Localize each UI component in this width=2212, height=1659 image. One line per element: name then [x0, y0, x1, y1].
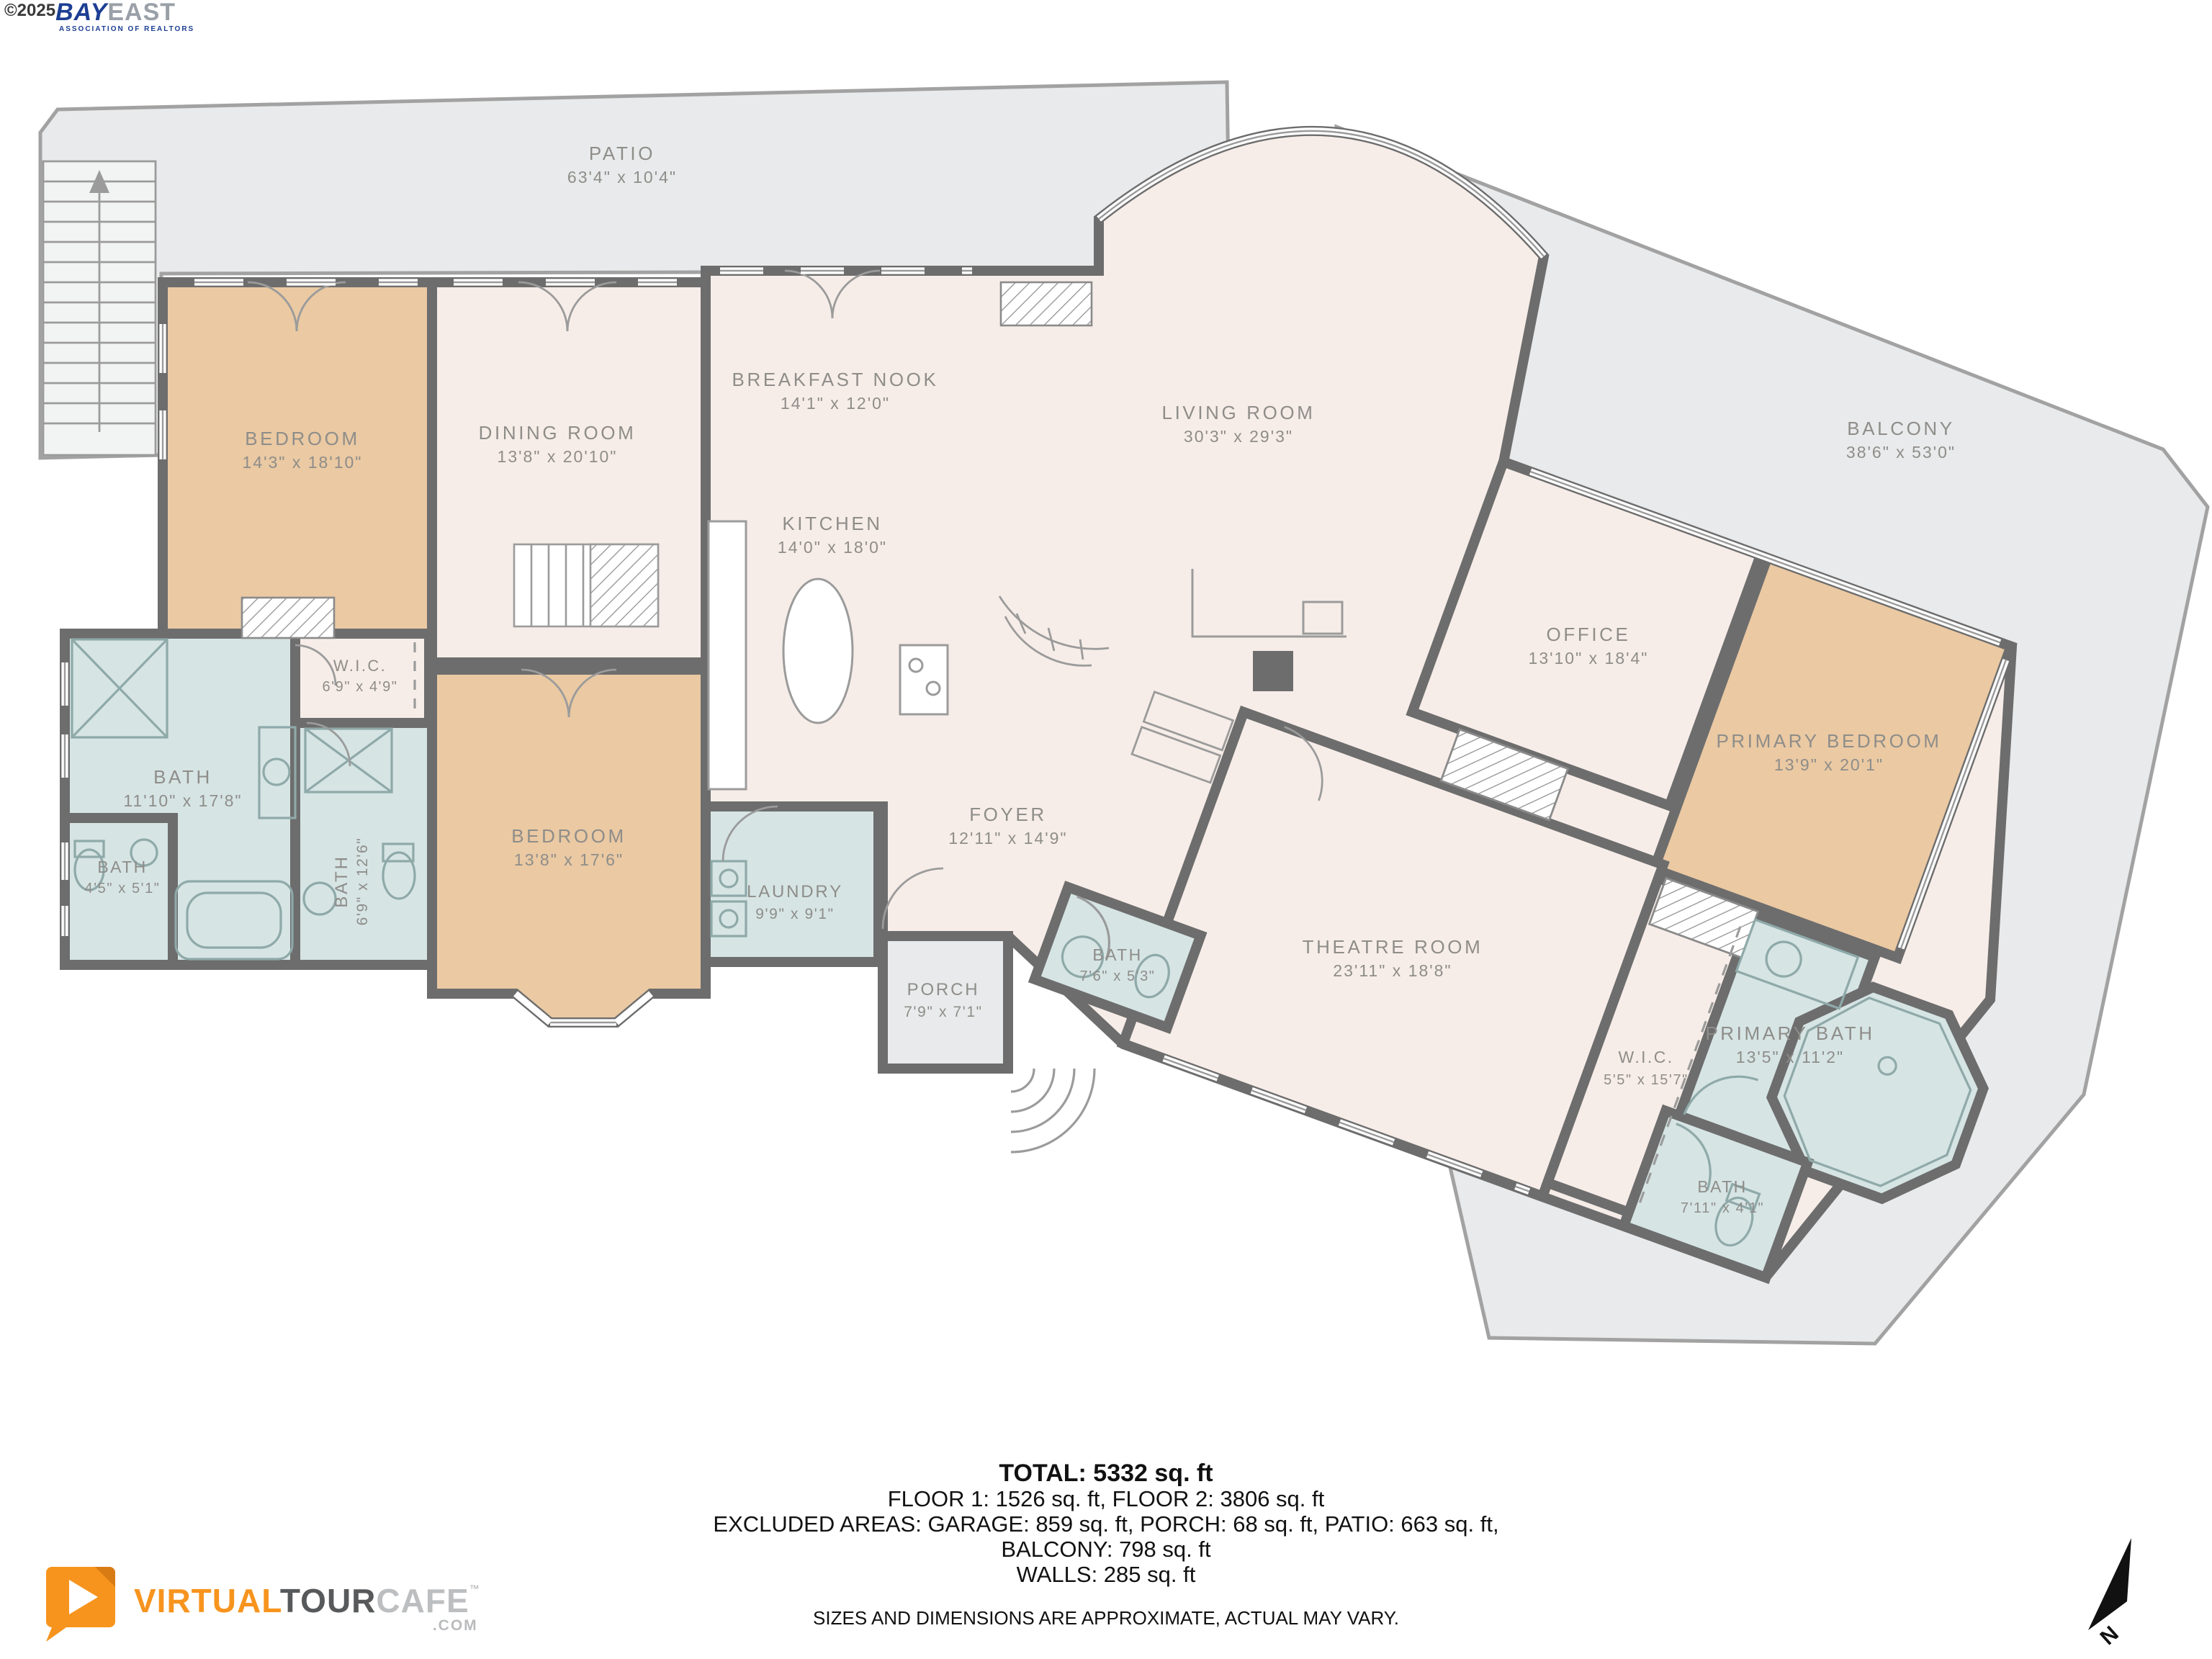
room-label-bath-vertical: BATH — [332, 855, 351, 907]
room-dims-bath-small-left: 4'5" x 5'1" — [84, 881, 160, 896]
room-dims-primary-bath: 13'5" x 11'2" — [1736, 1048, 1844, 1066]
room-label-breakfast: BREAKFAST NOOK — [732, 369, 939, 390]
bayeast-logo: ©2025BAYEAST ASSOCIATION OF REALTORS — [4, 0, 194, 33]
room-label-laundry: LAUNDRY — [747, 882, 843, 902]
room-label-living: LIVING ROOM — [1162, 402, 1316, 423]
bayeast-tagline: ASSOCIATION OF REALTORS — [59, 26, 194, 33]
bayeast-east-text: EAST — [107, 0, 176, 26]
room-dims-bath-main: 11'10" x 17'8" — [123, 791, 242, 810]
room-dims-laundry: 9'9" x 9'1" — [755, 906, 834, 922]
virtualtourcafe-logo: VIRTUALTOURCAFE™ .COM — [43, 1561, 480, 1645]
porch-steps — [1011, 1069, 1094, 1152]
staircase-interior — [514, 544, 658, 626]
total-area: TOTAL: 5332 sq. ft — [0, 1460, 2212, 1486]
room-label-wic-left: W.I.C. — [333, 657, 387, 675]
room-dims-patio: 63'4" x 10'4" — [567, 168, 677, 186]
room-label-wic-primary: W.I.C. — [1618, 1048, 1673, 1066]
wic-left — [295, 634, 429, 723]
room-label-porch: PORCH — [907, 980, 980, 999]
counter — [709, 521, 746, 789]
bayeast-bay-text: BAY — [55, 0, 107, 26]
room-dims-kitchen: 14'0" x 18'0" — [778, 538, 887, 557]
room-label-primary-bath: PRIMARY BATH — [1705, 1022, 1874, 1044]
room-dims-porch: 7'9" x 7'1" — [904, 1004, 982, 1020]
closet-hatch-bedroom — [242, 598, 334, 638]
kitchen-island — [783, 579, 853, 723]
room-label-patio: PATIO — [589, 143, 655, 164]
vtc-tour-text: TOUR — [280, 1582, 377, 1619]
trademark-symbol: ™ — [469, 1583, 480, 1594]
porch — [883, 936, 1008, 1069]
room-dims-bath-vertical: 6'9" x 12'6" — [354, 837, 371, 926]
floor-plan-drawing: PATIO 63'4" x 10'4" BEDROOM 14'3" x 18'1… — [0, 0, 2212, 1659]
staircase-exterior — [43, 161, 156, 455]
room-dims-office: 13'10" x 18'4" — [1529, 649, 1649, 667]
room-label-bath-main: BATH — [153, 766, 212, 788]
excluded-areas: EXCLUDED AREAS: GARAGE: 859 sq. ft, PORC… — [0, 1511, 2212, 1537]
vtc-cafe-text: CAFE — [376, 1582, 469, 1619]
floor-plan-page: PATIO 63'4" x 10'4" BEDROOM 14'3" x 18'1… — [0, 0, 2212, 1659]
room-label-bedroom-lower: BEDROOM — [511, 825, 626, 847]
room-dims-bath-primary: 7'11" x 4'1" — [1681, 1200, 1764, 1216]
room-label-balcony: BALCONY — [1847, 418, 1954, 439]
room-dims-bath-foyer: 7'6" x 5'3" — [1079, 968, 1155, 984]
play-chat-icon — [43, 1561, 121, 1645]
room-dims-bedroom-lower: 13'8" x 17'6" — [514, 850, 624, 869]
room-dims-wic-primary: 5'5" x 15'7" — [1604, 1072, 1689, 1088]
room-dims-dining: 13'8" x 20'10" — [498, 447, 618, 466]
room-label-office: OFFICE — [1547, 624, 1631, 645]
room-dims-balcony: 38'6" x 53'0" — [1846, 443, 1956, 462]
room-label-dining: DINING ROOM — [479, 422, 637, 444]
room-label-bath-primary: BATH — [1697, 1177, 1747, 1196]
room-dims-theatre: 23'11" x 18'8" — [1333, 961, 1452, 980]
room-label-theatre: THEATRE ROOM — [1303, 936, 1483, 958]
copyright-text: ©2025 — [4, 1, 55, 20]
room-dims-bedroom-left: 14'3" x 18'10" — [243, 453, 363, 472]
vtc-virtual-text: VIRTUAL — [134, 1582, 280, 1619]
room-dims-wic-left: 6'9" x 4'9" — [322, 679, 397, 695]
room-label-bedroom-left: BEDROOM — [245, 428, 360, 449]
fireplace — [1001, 282, 1092, 325]
floor-areas: FLOOR 1: 1526 sq. ft, FLOOR 2: 3806 sq. … — [0, 1486, 2212, 1511]
room-dims-breakfast: 14'1" x 12'0" — [781, 394, 890, 413]
vtc-domain-text: .COM — [433, 1617, 478, 1635]
range — [900, 645, 948, 714]
room-label-primary-bedroom: PRIMARY BEDROOM — [1716, 730, 1941, 752]
balcony-area-text: BALCONY: 798 sq. ft — [0, 1537, 2212, 1562]
room-dims-foyer: 12'11" x 14'9" — [948, 829, 1067, 848]
room-dims-primary-bedroom: 13'9" x 20'1" — [1774, 755, 1884, 774]
structural-post — [1253, 651, 1293, 691]
room-label-foyer: FOYER — [969, 804, 1047, 825]
room-label-bath-small-left: BATH — [97, 858, 147, 876]
room-label-kitchen: KITCHEN — [782, 513, 882, 534]
room-dims-living: 30'3" x 29'3" — [1184, 427, 1293, 446]
room-label-bath-foyer: BATH — [1092, 945, 1142, 964]
